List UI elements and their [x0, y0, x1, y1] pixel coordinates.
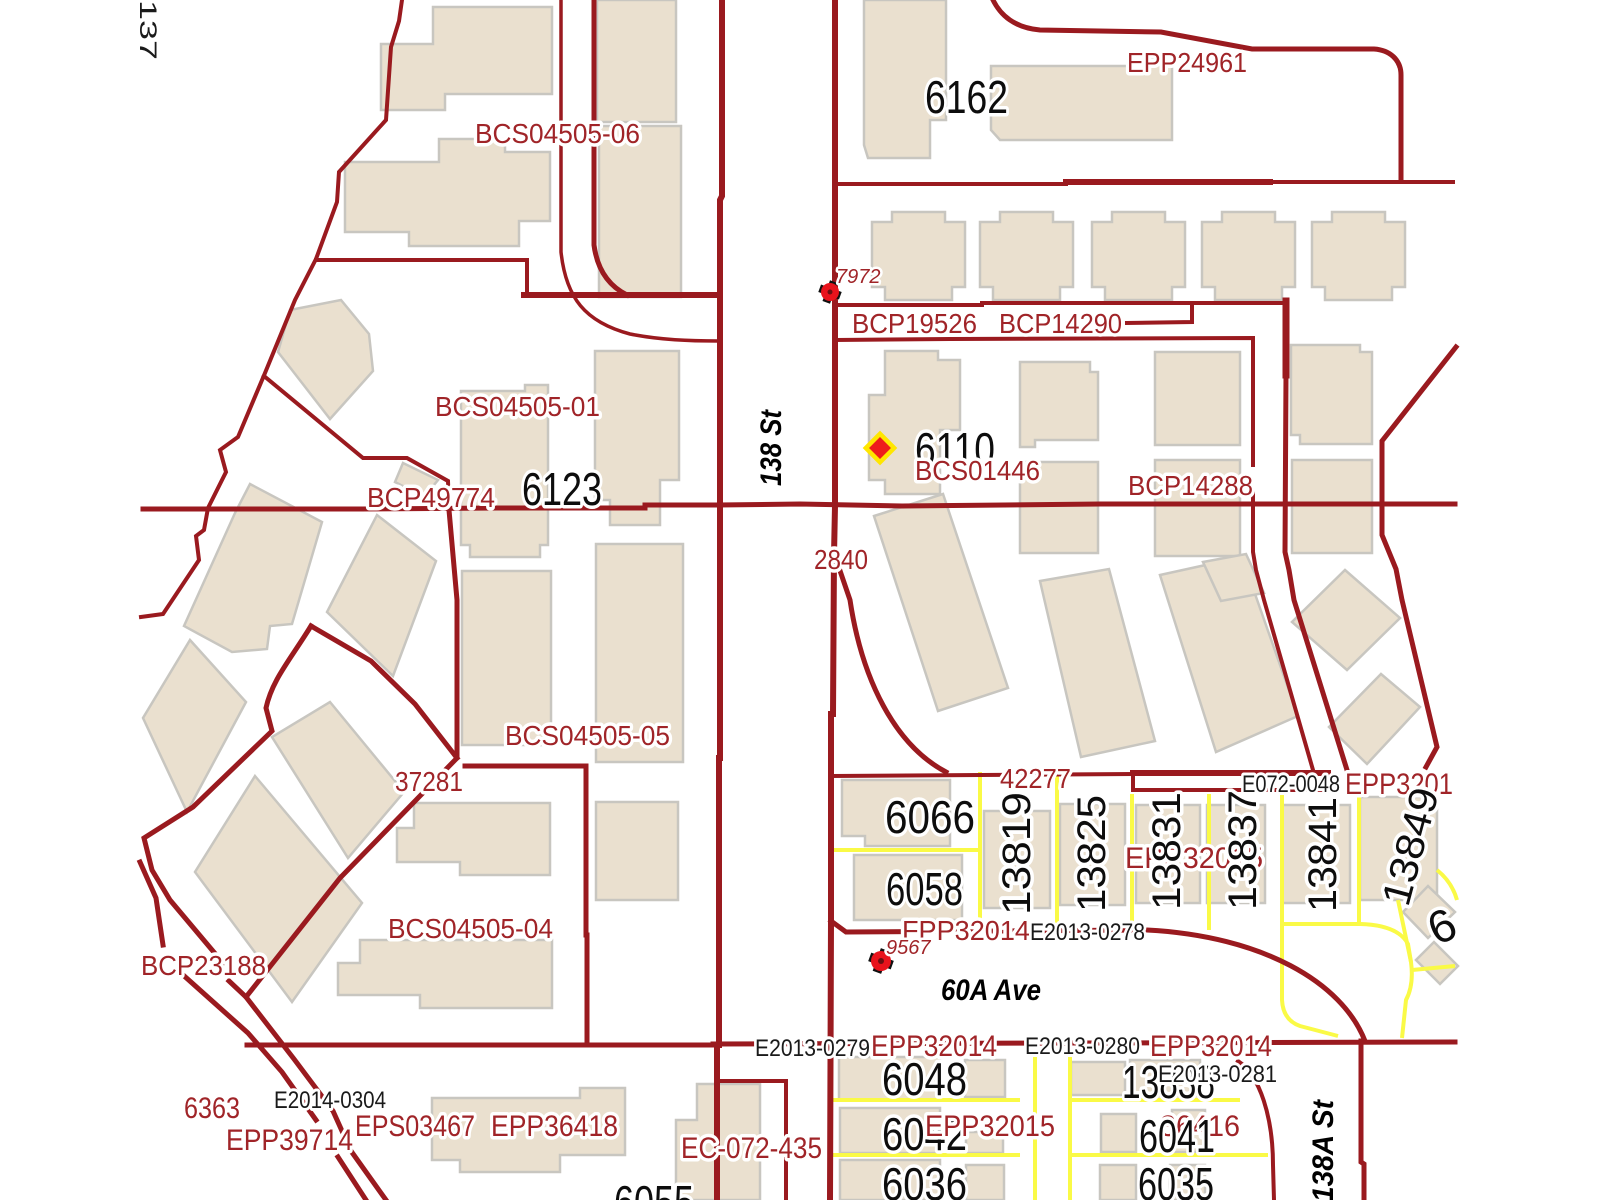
svg-text:6055: 6055: [614, 1176, 694, 1200]
svg-text:BCP14290: BCP14290: [999, 308, 1122, 339]
svg-text:6363: 6363: [184, 1092, 240, 1125]
svg-text:EPP39714: EPP39714: [226, 1124, 353, 1157]
svg-text:EPS03467: EPS03467: [355, 1110, 475, 1143]
svg-text:37281: 37281: [395, 766, 463, 797]
svg-text:13819: 13819: [995, 792, 1039, 915]
svg-text:E2013-0279: E2013-0279: [755, 1035, 870, 1062]
svg-text:EC-072-435: EC-072-435: [681, 1132, 822, 1165]
svg-text:6036: 6036: [882, 1158, 967, 1200]
svg-text:9567: 9567: [886, 937, 931, 959]
svg-text:E2014-0304: E2014-0304: [274, 1087, 386, 1114]
svg-text:BCS01446: BCS01446: [915, 455, 1040, 486]
svg-text:60A Ave: 60A Ave: [941, 974, 1041, 1007]
svg-text:BCS04505-04: BCS04505-04: [388, 913, 553, 944]
svg-text:EPP36418: EPP36418: [491, 1110, 618, 1143]
svg-text:13841: 13841: [1301, 797, 1345, 912]
svg-text:42277: 42277: [1000, 763, 1071, 794]
svg-text:EPP32015: EPP32015: [925, 1110, 1055, 1143]
svg-text:BCP19526: BCP19526: [852, 308, 977, 339]
svg-text:BCP49774: BCP49774: [367, 482, 495, 513]
svg-text:6041: 6041: [1139, 1110, 1215, 1162]
svg-text:BCS04505-01: BCS04505-01: [435, 391, 600, 422]
svg-text:E2013-0281: E2013-0281: [1158, 1061, 1277, 1088]
svg-text:13831: 13831: [1145, 792, 1189, 910]
svg-text:138A St: 138A St: [1307, 1098, 1340, 1200]
svg-text:6066: 6066: [885, 791, 975, 843]
svg-text:BCP14288: BCP14288: [1128, 470, 1253, 501]
svg-text:137: 137: [134, 0, 161, 60]
svg-text:BCS04505-05: BCS04505-05: [505, 720, 670, 751]
svg-text:138 St: 138 St: [755, 408, 788, 486]
svg-text:BCP23188: BCP23188: [141, 950, 266, 981]
svg-text:6162: 6162: [925, 71, 1008, 123]
svg-text:6035: 6035: [1138, 1158, 1214, 1200]
svg-text:7972: 7972: [836, 266, 881, 288]
svg-text:13825: 13825: [1070, 795, 1114, 912]
svg-text:6048: 6048: [882, 1053, 967, 1105]
svg-text:2840: 2840: [814, 544, 868, 575]
svg-text:6058: 6058: [886, 863, 963, 915]
svg-text:13837: 13837: [1221, 790, 1265, 910]
svg-text:EPP24961: EPP24961: [1127, 47, 1247, 78]
svg-text:6123: 6123: [522, 463, 602, 515]
svg-text:E2013-0278: E2013-0278: [1030, 919, 1145, 946]
svg-text:BCS04505-06: BCS04505-06: [475, 118, 640, 149]
